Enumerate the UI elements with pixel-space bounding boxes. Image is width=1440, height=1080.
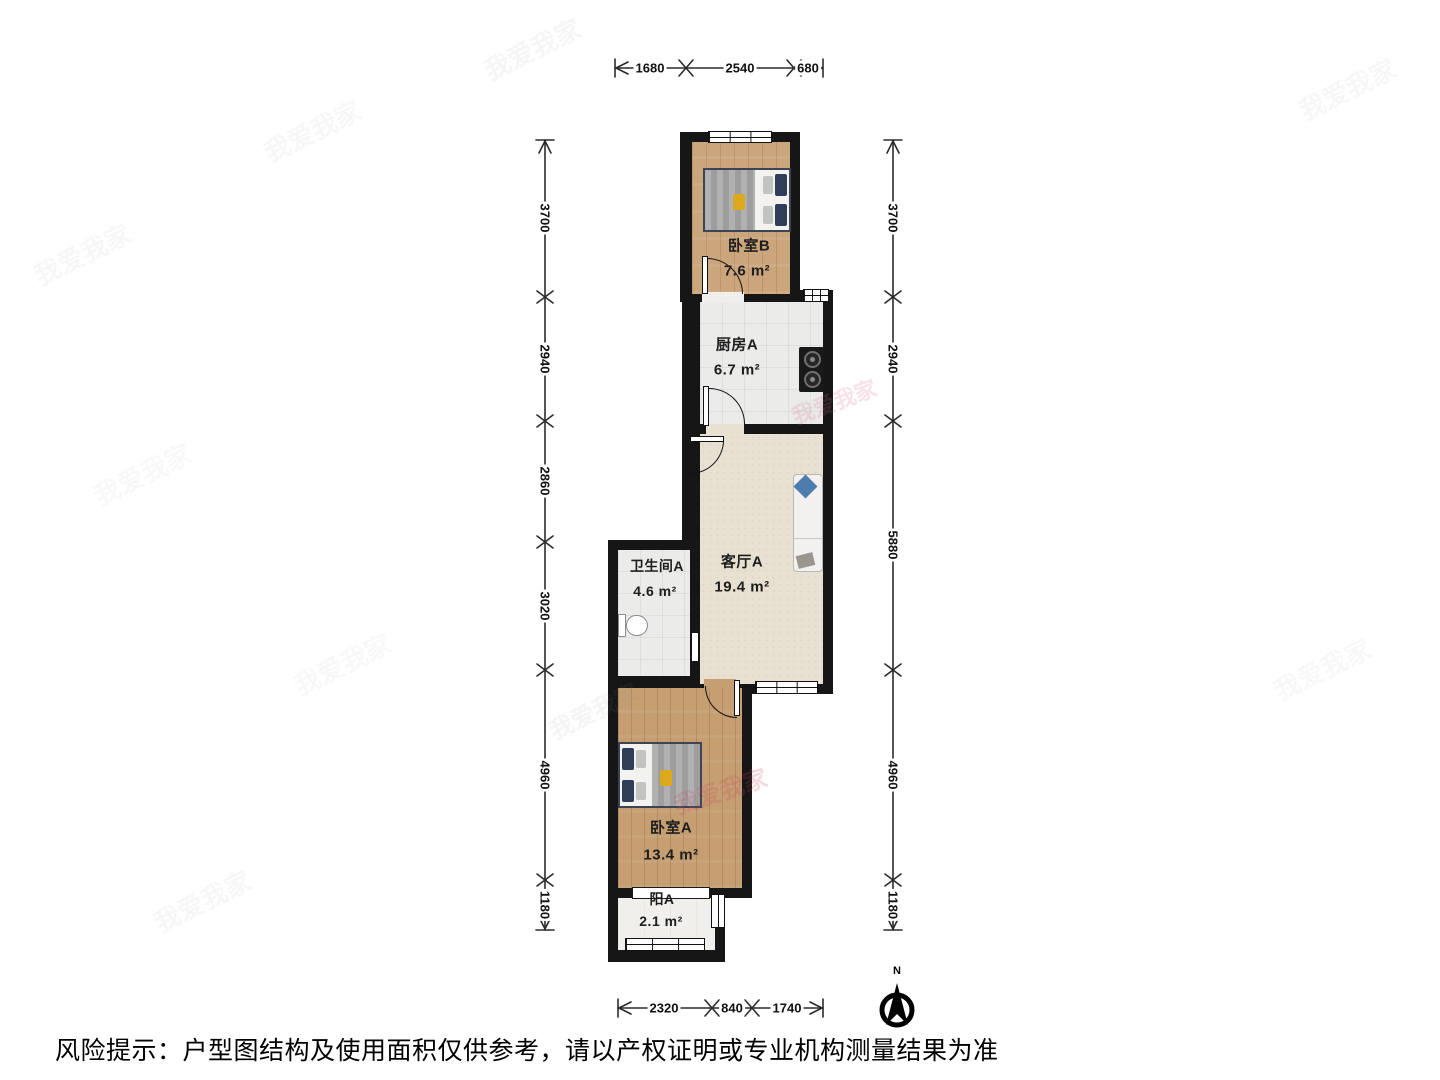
dim-left-2: 2940 xyxy=(538,343,553,376)
dim-left-4: 3020 xyxy=(538,590,553,623)
dim-left-6: 1180 xyxy=(538,889,553,921)
compass-north-letter: N xyxy=(893,965,901,977)
dim-left-5: 4960 xyxy=(538,759,553,792)
dim-right-5: 1180 xyxy=(886,889,901,921)
dim-bottom-1: 2320 xyxy=(648,1001,681,1016)
dim-top-2: 2540 xyxy=(724,61,757,76)
dim-left-1: 3700 xyxy=(538,202,553,235)
dim-right-4: 4960 xyxy=(886,759,901,792)
dim-left-3: 2860 xyxy=(538,465,553,498)
dim-top-1: 1680 xyxy=(634,61,667,76)
dimension-lines xyxy=(0,0,1440,1080)
dim-bottom-2: 840 xyxy=(719,1001,745,1016)
floor-plan-page: 我爱我家 我爱我家 我爱我家 我爱我家 我爱我家 我爱我家 我爱我家 我爱我家 … xyxy=(0,0,1440,1080)
risk-disclaimer: 风险提示：户型图结构及使用面积仅供参考，请以产权证明或专业机构测量结果为准 xyxy=(55,1031,999,1067)
dim-top-3: 680 xyxy=(795,61,821,76)
dim-right-3: 5880 xyxy=(886,529,901,562)
dim-right-2: 2940 xyxy=(886,343,901,376)
dim-right-1: 3700 xyxy=(886,202,901,235)
dim-bottom-3: 1740 xyxy=(771,1001,804,1016)
